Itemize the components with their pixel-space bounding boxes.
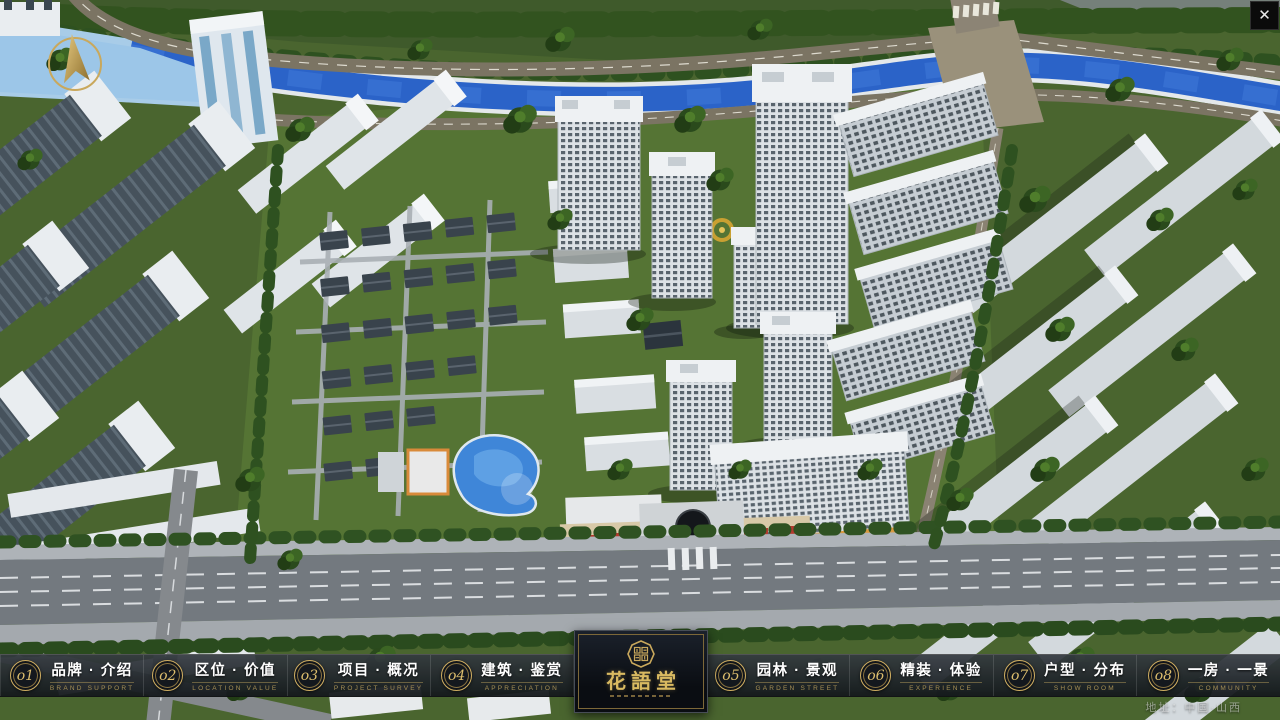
- close-icon: ✕: [1258, 8, 1271, 23]
- nav-item-project[interactable]: o3 项目 · 概况 PROJECT SURVEY: [288, 655, 431, 696]
- nav-sublabel: COMMUNITY: [1188, 682, 1269, 692]
- masterplan-render: [0, 0, 1280, 720]
- nav-badge-7: o7: [1004, 660, 1035, 691]
- nav-sublabel: BRAND SUPPORT: [50, 682, 134, 692]
- nav-badge-1: o1: [10, 660, 41, 691]
- nav-badge-2: o2: [152, 660, 183, 691]
- close-button[interactable]: ✕: [1250, 1, 1279, 30]
- nav-text: 精装 · 体验 EXPERIENCE: [900, 659, 981, 692]
- nav-sublabel: LOCATION VALUE: [192, 682, 278, 692]
- compass-icon: [42, 26, 108, 98]
- nav-text: 项目 · 概况 PROJECT SURVEY: [334, 659, 423, 692]
- nav-group-left: o1 品牌 · 介绍 BRAND SUPPORT o2 区位 · 价值 LOCA…: [0, 655, 574, 696]
- nav-item-location[interactable]: o2 区位 · 价值 LOCATION VALUE: [144, 655, 287, 696]
- nav-sublabel: GARDEN STREET: [755, 682, 839, 692]
- nav-label: 建筑 · 鉴赏: [481, 659, 562, 680]
- nav-text: 户型 · 分布 SHOW ROOM: [1044, 659, 1125, 692]
- nav-text: 建筑 · 鉴赏 APPRECIATION: [481, 659, 562, 692]
- nav-text: 区位 · 价值 LOCATION VALUE: [192, 659, 278, 692]
- project-logo-panel[interactable]: 花語堂: [574, 630, 708, 713]
- seal-emblem-icon: [627, 640, 655, 668]
- nav-text: 园林 · 景观 GARDEN STREET: [755, 659, 839, 692]
- nav-label: 户型 · 分布: [1044, 659, 1125, 680]
- nav-badge-3: o3: [294, 660, 325, 691]
- nav-sublabel: APPRECIATION: [481, 682, 562, 692]
- project-logo-title: 花語堂: [601, 670, 681, 692]
- nav-text: 品牌 · 介绍 BRAND SUPPORT: [50, 659, 134, 692]
- logo-subtitle-text: [610, 695, 672, 697]
- nav-sublabel: EXPERIENCE: [900, 682, 981, 692]
- nav-item-views[interactable]: o8 一房 · 一景 COMMUNITY: [1137, 655, 1280, 696]
- nav-badge-6: o6: [860, 660, 891, 691]
- nav-sublabel: PROJECT SURVEY: [334, 682, 423, 692]
- nav-badge-8: o8: [1148, 660, 1179, 691]
- nav-label: 一房 · 一景: [1188, 659, 1269, 680]
- nav-item-floorplans[interactable]: o7 户型 · 分布 SHOW ROOM: [994, 655, 1138, 696]
- nav-group-right: o5 园林 · 景观 GARDEN STREET o6 精装 · 体验 EXPE…: [706, 655, 1280, 696]
- nav-label: 精装 · 体验: [900, 659, 981, 680]
- nav-item-garden[interactable]: o5 园林 · 景观 GARDEN STREET: [706, 655, 850, 696]
- sales-presentation-app: ✕ o1 品牌 · 介绍 BRAND SUPPORT o2 区位 · 价值 LO…: [0, 0, 1280, 720]
- nav-sublabel: SHOW ROOM: [1044, 682, 1125, 692]
- nav-item-brand[interactable]: o1 品牌 · 介绍 BRAND SUPPORT: [0, 655, 144, 696]
- nav-label: 品牌 · 介绍: [51, 659, 132, 680]
- nav-text: 一房 · 一景 COMMUNITY: [1188, 659, 1269, 692]
- project-address: 地址：中国·山西: [1145, 699, 1242, 715]
- nav-badge-5: o5: [715, 660, 746, 691]
- nav-item-interior[interactable]: o6 精装 · 体验 EXPERIENCE: [850, 655, 994, 696]
- nav-item-architecture[interactable]: o4 建筑 · 鉴赏 APPRECIATION: [431, 655, 574, 696]
- logo-frame: 花語堂: [578, 634, 704, 709]
- nav-label: 项目 · 概况: [338, 659, 419, 680]
- nav-badge-4: o4: [441, 660, 472, 691]
- nav-label: 园林 · 景观: [757, 659, 838, 680]
- nav-label: 区位 · 价值: [195, 659, 276, 680]
